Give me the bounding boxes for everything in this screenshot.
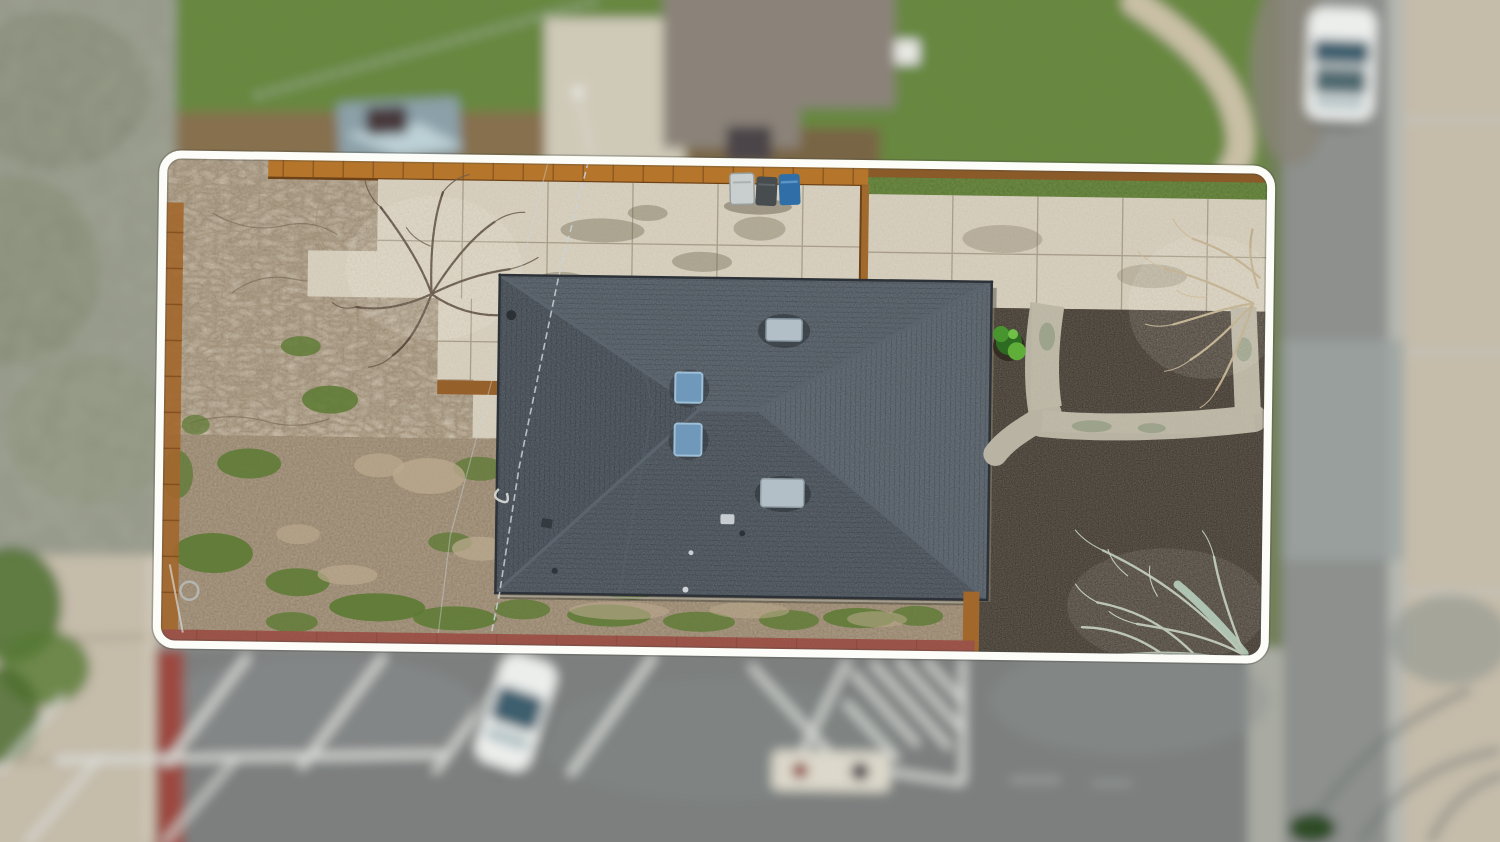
parking-lot bbox=[0, 644, 1285, 842]
property bbox=[157, 154, 1287, 666]
trash-bin-blue bbox=[778, 174, 800, 206]
roof-vent-north bbox=[766, 319, 802, 342]
roof-small-vent bbox=[720, 514, 734, 524]
roof-vent-south bbox=[761, 479, 804, 508]
aerial-photo-canvas bbox=[0, 0, 1500, 842]
trash-bin-dark bbox=[755, 176, 777, 206]
trash-bins bbox=[724, 173, 801, 216]
green-bush-bottom bbox=[1288, 813, 1336, 842]
skylight-1 bbox=[675, 372, 702, 402]
street-right bbox=[1250, 0, 1500, 842]
sidewalk-bottom-left bbox=[0, 547, 160, 842]
trash-bin-light bbox=[730, 173, 755, 204]
street-parked-car bbox=[1305, 7, 1377, 131]
neighbor-shed-tarp bbox=[337, 97, 464, 161]
aerial-photo bbox=[0, 0, 1500, 842]
skylight-2 bbox=[674, 423, 701, 455]
pavement-marker bbox=[772, 750, 891, 792]
tree-canopy bbox=[0, 0, 176, 620]
